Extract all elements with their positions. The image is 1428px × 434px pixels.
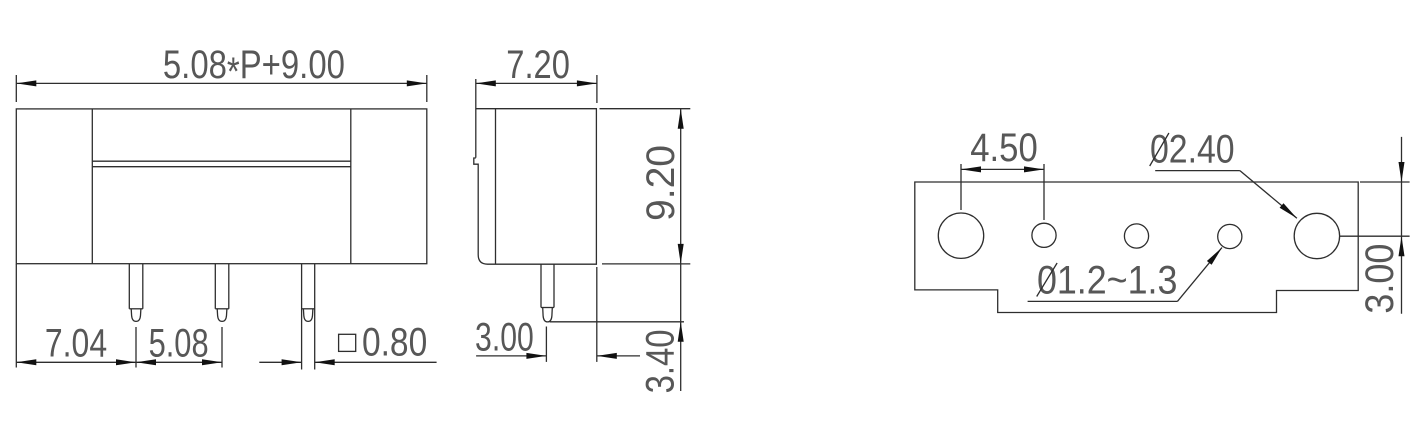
svg-text:5.08*P+9.00: 5.08*P+9.00 [163, 43, 345, 94]
svg-text:3.40: 3.40 [639, 329, 683, 393]
svg-text:5.08: 5.08 [149, 322, 209, 366]
svg-text:01.2~1.3: 01.2~1.3 [1037, 258, 1178, 302]
svg-text:02.40: 02.40 [1150, 128, 1235, 172]
svg-text:7.20: 7.20 [506, 43, 570, 87]
svg-text:0.80: 0.80 [362, 321, 427, 365]
svg-text:7.04: 7.04 [45, 322, 107, 366]
svg-text:3.00: 3.00 [1358, 244, 1402, 314]
svg-text:3.00: 3.00 [475, 316, 534, 360]
svg-text:9.20: 9.20 [639, 145, 683, 221]
svg-text:4.50: 4.50 [970, 126, 1038, 170]
